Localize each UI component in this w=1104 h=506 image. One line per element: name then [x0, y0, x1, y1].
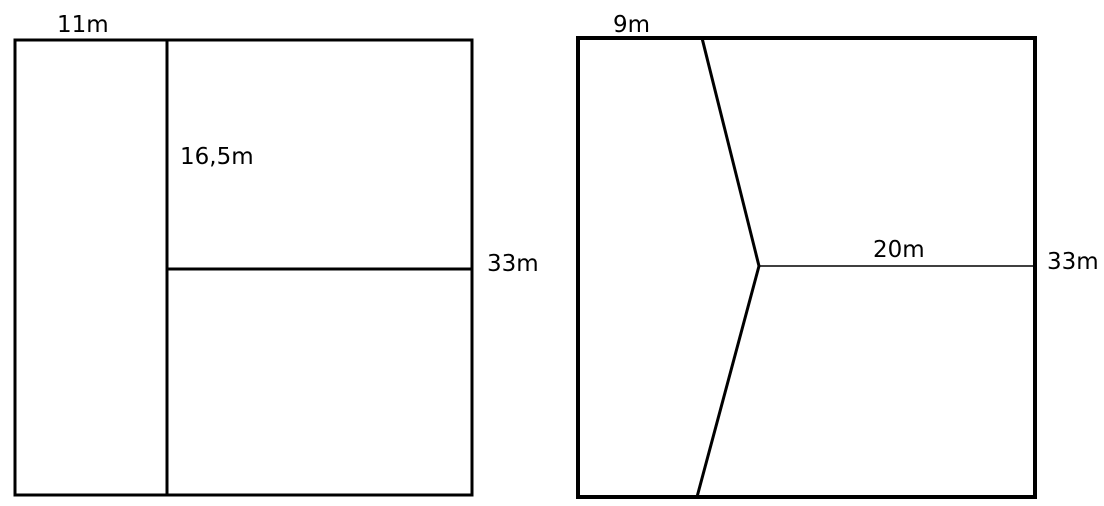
right-figure-outer-rectangle: [578, 38, 1035, 497]
right-figure-inner-dimension-label: 20m: [873, 237, 925, 263]
right-figure-top-dimension-label: 9m: [613, 12, 650, 38]
right-figure-upper-slanted-line: [702, 38, 759, 266]
right-figure: 9m 20m 33m: [578, 12, 1099, 497]
left-figure-inner-dimension-label: 16,5m: [180, 144, 254, 170]
geometry-diagrams-canvas: 11m 16,5m 33m 9m 20m 33m: [0, 0, 1104, 506]
left-figure-top-dimension-label: 11m: [57, 12, 109, 38]
left-figure: 11m 16,5m 33m: [15, 12, 539, 495]
left-figure-right-dimension-label: 33m: [487, 251, 539, 277]
right-figure-right-dimension-label: 33m: [1047, 249, 1099, 275]
diagram-svg: 11m 16,5m 33m 9m 20m 33m: [0, 0, 1104, 506]
right-figure-lower-slanted-line: [697, 266, 759, 497]
